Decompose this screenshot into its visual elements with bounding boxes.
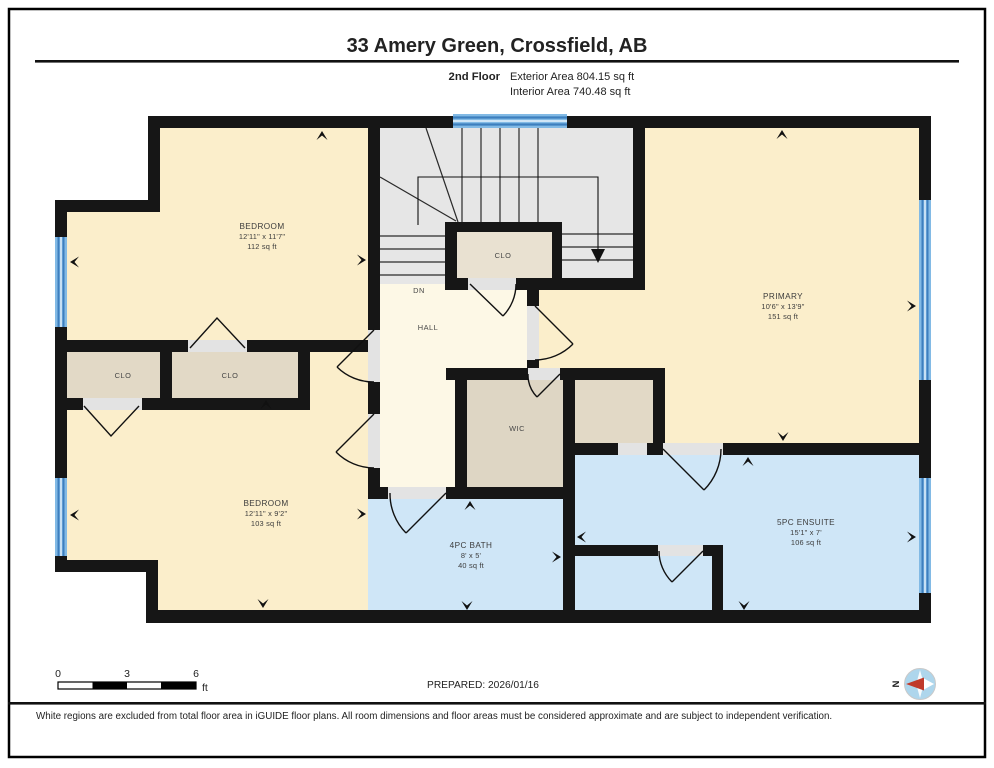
- bedroom-1-label: BEDROOM: [239, 222, 284, 231]
- window-bedroom-1-left: [55, 237, 67, 327]
- scale-zero: 0: [55, 668, 61, 680]
- floor-plan-canvas: 33 Amery Green, Crossfield, AB 2nd Floor…: [0, 0, 994, 768]
- room-bedroom-1: [62, 122, 368, 346]
- bedroom-2-dims: 12'11" x 9'2": [245, 509, 288, 518]
- ensuite-label: 5PC ENSUITE: [777, 518, 835, 527]
- disclaimer-text: White regions are excluded from total fl…: [36, 711, 832, 722]
- bedroom-1-area: 112 sq ft: [247, 242, 277, 251]
- header-rule: [35, 60, 959, 63]
- room-bedroom-2: [62, 404, 368, 616]
- floor-plan-page: 33 Amery Green, Crossfield, AB 2nd Floor…: [0, 0, 994, 768]
- scale-unit: ft: [202, 682, 208, 694]
- primary-area: 151 sq ft: [768, 312, 798, 321]
- bedroom-2-label: BEDROOM: [243, 499, 288, 508]
- window-bedroom-2-left: [55, 478, 67, 556]
- room-ensuite: [563, 443, 931, 622]
- footer-rule: [8, 702, 986, 705]
- room-wic: [455, 368, 575, 499]
- interior-area: Interior Area 740.48 sq ft: [510, 86, 630, 98]
- primary-dims: 10'6" x 13'9": [761, 302, 804, 311]
- page-title: 33 Amery Green, Crossfield, AB: [347, 35, 648, 57]
- bath-area: 40 sq ft: [458, 561, 484, 570]
- wic-label: WIC: [509, 424, 525, 433]
- exterior-area: Exterior Area 804.15 sq ft: [510, 71, 634, 83]
- north-compass: N: [891, 669, 936, 700]
- scale-bar: 0 3 6 ft: [55, 668, 208, 694]
- room-linen-closet: [575, 368, 665, 455]
- prepared-date: PREPARED: 2026/01/16: [427, 680, 539, 691]
- ensuite-area: 106 sq ft: [791, 538, 821, 547]
- scale-six: 6: [193, 668, 199, 680]
- room-primary: [639, 116, 931, 455]
- primary-entry-lobe: [533, 284, 653, 374]
- compass-n-label: N: [891, 680, 902, 687]
- primary-label: PRIMARY: [763, 292, 803, 301]
- bath-label: 4PC BATH: [450, 541, 493, 550]
- bath-dims: 8' x 5': [461, 551, 482, 560]
- bedroom-2-area: 103 sq ft: [251, 519, 281, 528]
- window-primary-right: [919, 200, 931, 380]
- stairs-dn-label: DN: [413, 286, 425, 295]
- ensuite-dims: 15'1" x 7': [790, 528, 822, 537]
- bedroom-1-dims: 12'11" x 11'7": [239, 232, 286, 241]
- closet-stairs-label: CLO: [495, 251, 512, 260]
- hall-label: HALL: [418, 323, 439, 332]
- scale-three: 3: [124, 668, 130, 680]
- floor-label: 2nd Floor: [449, 71, 501, 83]
- window-stairwell-top: [453, 114, 567, 128]
- window-ensuite-right: [919, 478, 931, 593]
- bedroom-2-alcove: [310, 346, 368, 410]
- closet-left-label: CLO: [115, 371, 132, 380]
- closet-right-label: CLO: [222, 371, 239, 380]
